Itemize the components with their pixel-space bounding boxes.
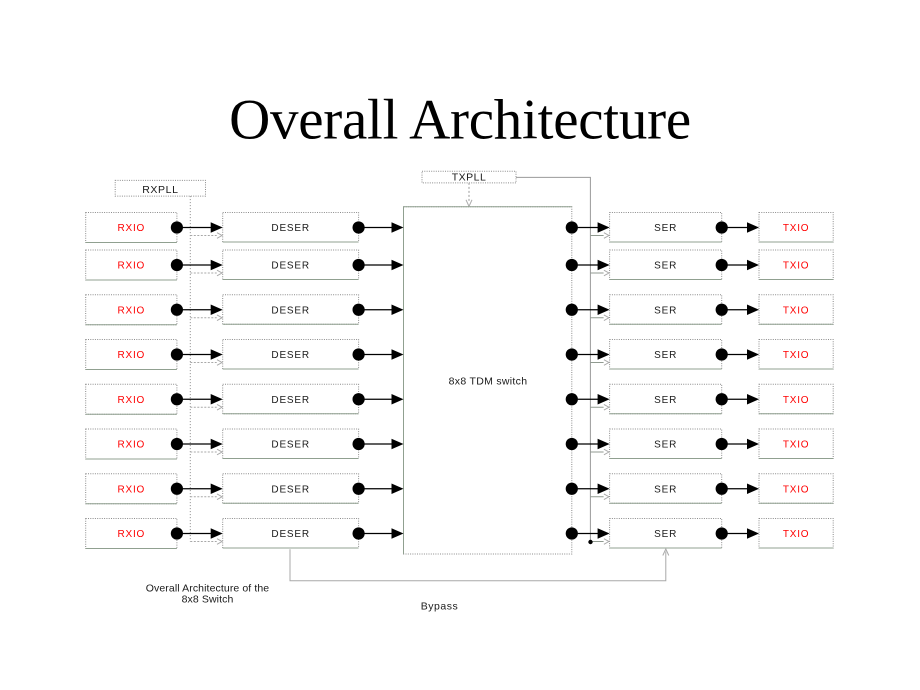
svg-text:DESER: DESER — [271, 440, 309, 451]
svg-text:TXPLL: TXPLL — [452, 172, 487, 184]
svg-text:DESER: DESER — [271, 350, 309, 361]
svg-text:Bypass: Bypass — [421, 601, 458, 613]
svg-text:SER: SER — [654, 395, 677, 406]
svg-text:SER: SER — [654, 261, 677, 272]
svg-text:RXIO: RXIO — [117, 440, 145, 451]
svg-text:DESER: DESER — [271, 261, 309, 272]
svg-text:SER: SER — [654, 529, 677, 540]
svg-text:TXIO: TXIO — [783, 529, 810, 540]
svg-text:RXIO: RXIO — [117, 350, 145, 361]
svg-text:DESER: DESER — [271, 484, 309, 495]
svg-text:TXIO: TXIO — [783, 223, 810, 234]
svg-text:RXPLL: RXPLL — [142, 184, 178, 196]
svg-text:DESER: DESER — [271, 395, 309, 406]
svg-text:RXIO: RXIO — [117, 223, 145, 234]
svg-text:SER: SER — [654, 350, 677, 361]
svg-text:Overall Architecture: Overall Architecture — [229, 89, 691, 152]
svg-text:TXIO: TXIO — [783, 395, 810, 406]
svg-text:DESER: DESER — [271, 305, 309, 316]
svg-text:DESER: DESER — [271, 529, 309, 540]
svg-text:DESER: DESER — [271, 223, 309, 234]
svg-text:RXIO: RXIO — [117, 305, 145, 316]
svg-text:TXIO: TXIO — [783, 261, 810, 272]
svg-text:RXIO: RXIO — [117, 395, 145, 406]
svg-text:TXIO: TXIO — [783, 440, 810, 451]
svg-text:RXIO: RXIO — [117, 261, 145, 272]
svg-text:SER: SER — [654, 305, 677, 316]
svg-text:SER: SER — [654, 440, 677, 451]
svg-text:SER: SER — [654, 223, 677, 234]
svg-text:RXIO: RXIO — [117, 529, 145, 540]
svg-text:TXIO: TXIO — [783, 484, 810, 495]
svg-text:8x8 TDM switch: 8x8 TDM switch — [449, 376, 528, 388]
svg-text:8x8 Switch: 8x8 Switch — [182, 594, 234, 606]
svg-text:SER: SER — [654, 484, 677, 495]
svg-text:TXIO: TXIO — [783, 305, 810, 316]
svg-text:TXIO: TXIO — [783, 350, 810, 361]
svg-text:RXIO: RXIO — [117, 484, 145, 495]
